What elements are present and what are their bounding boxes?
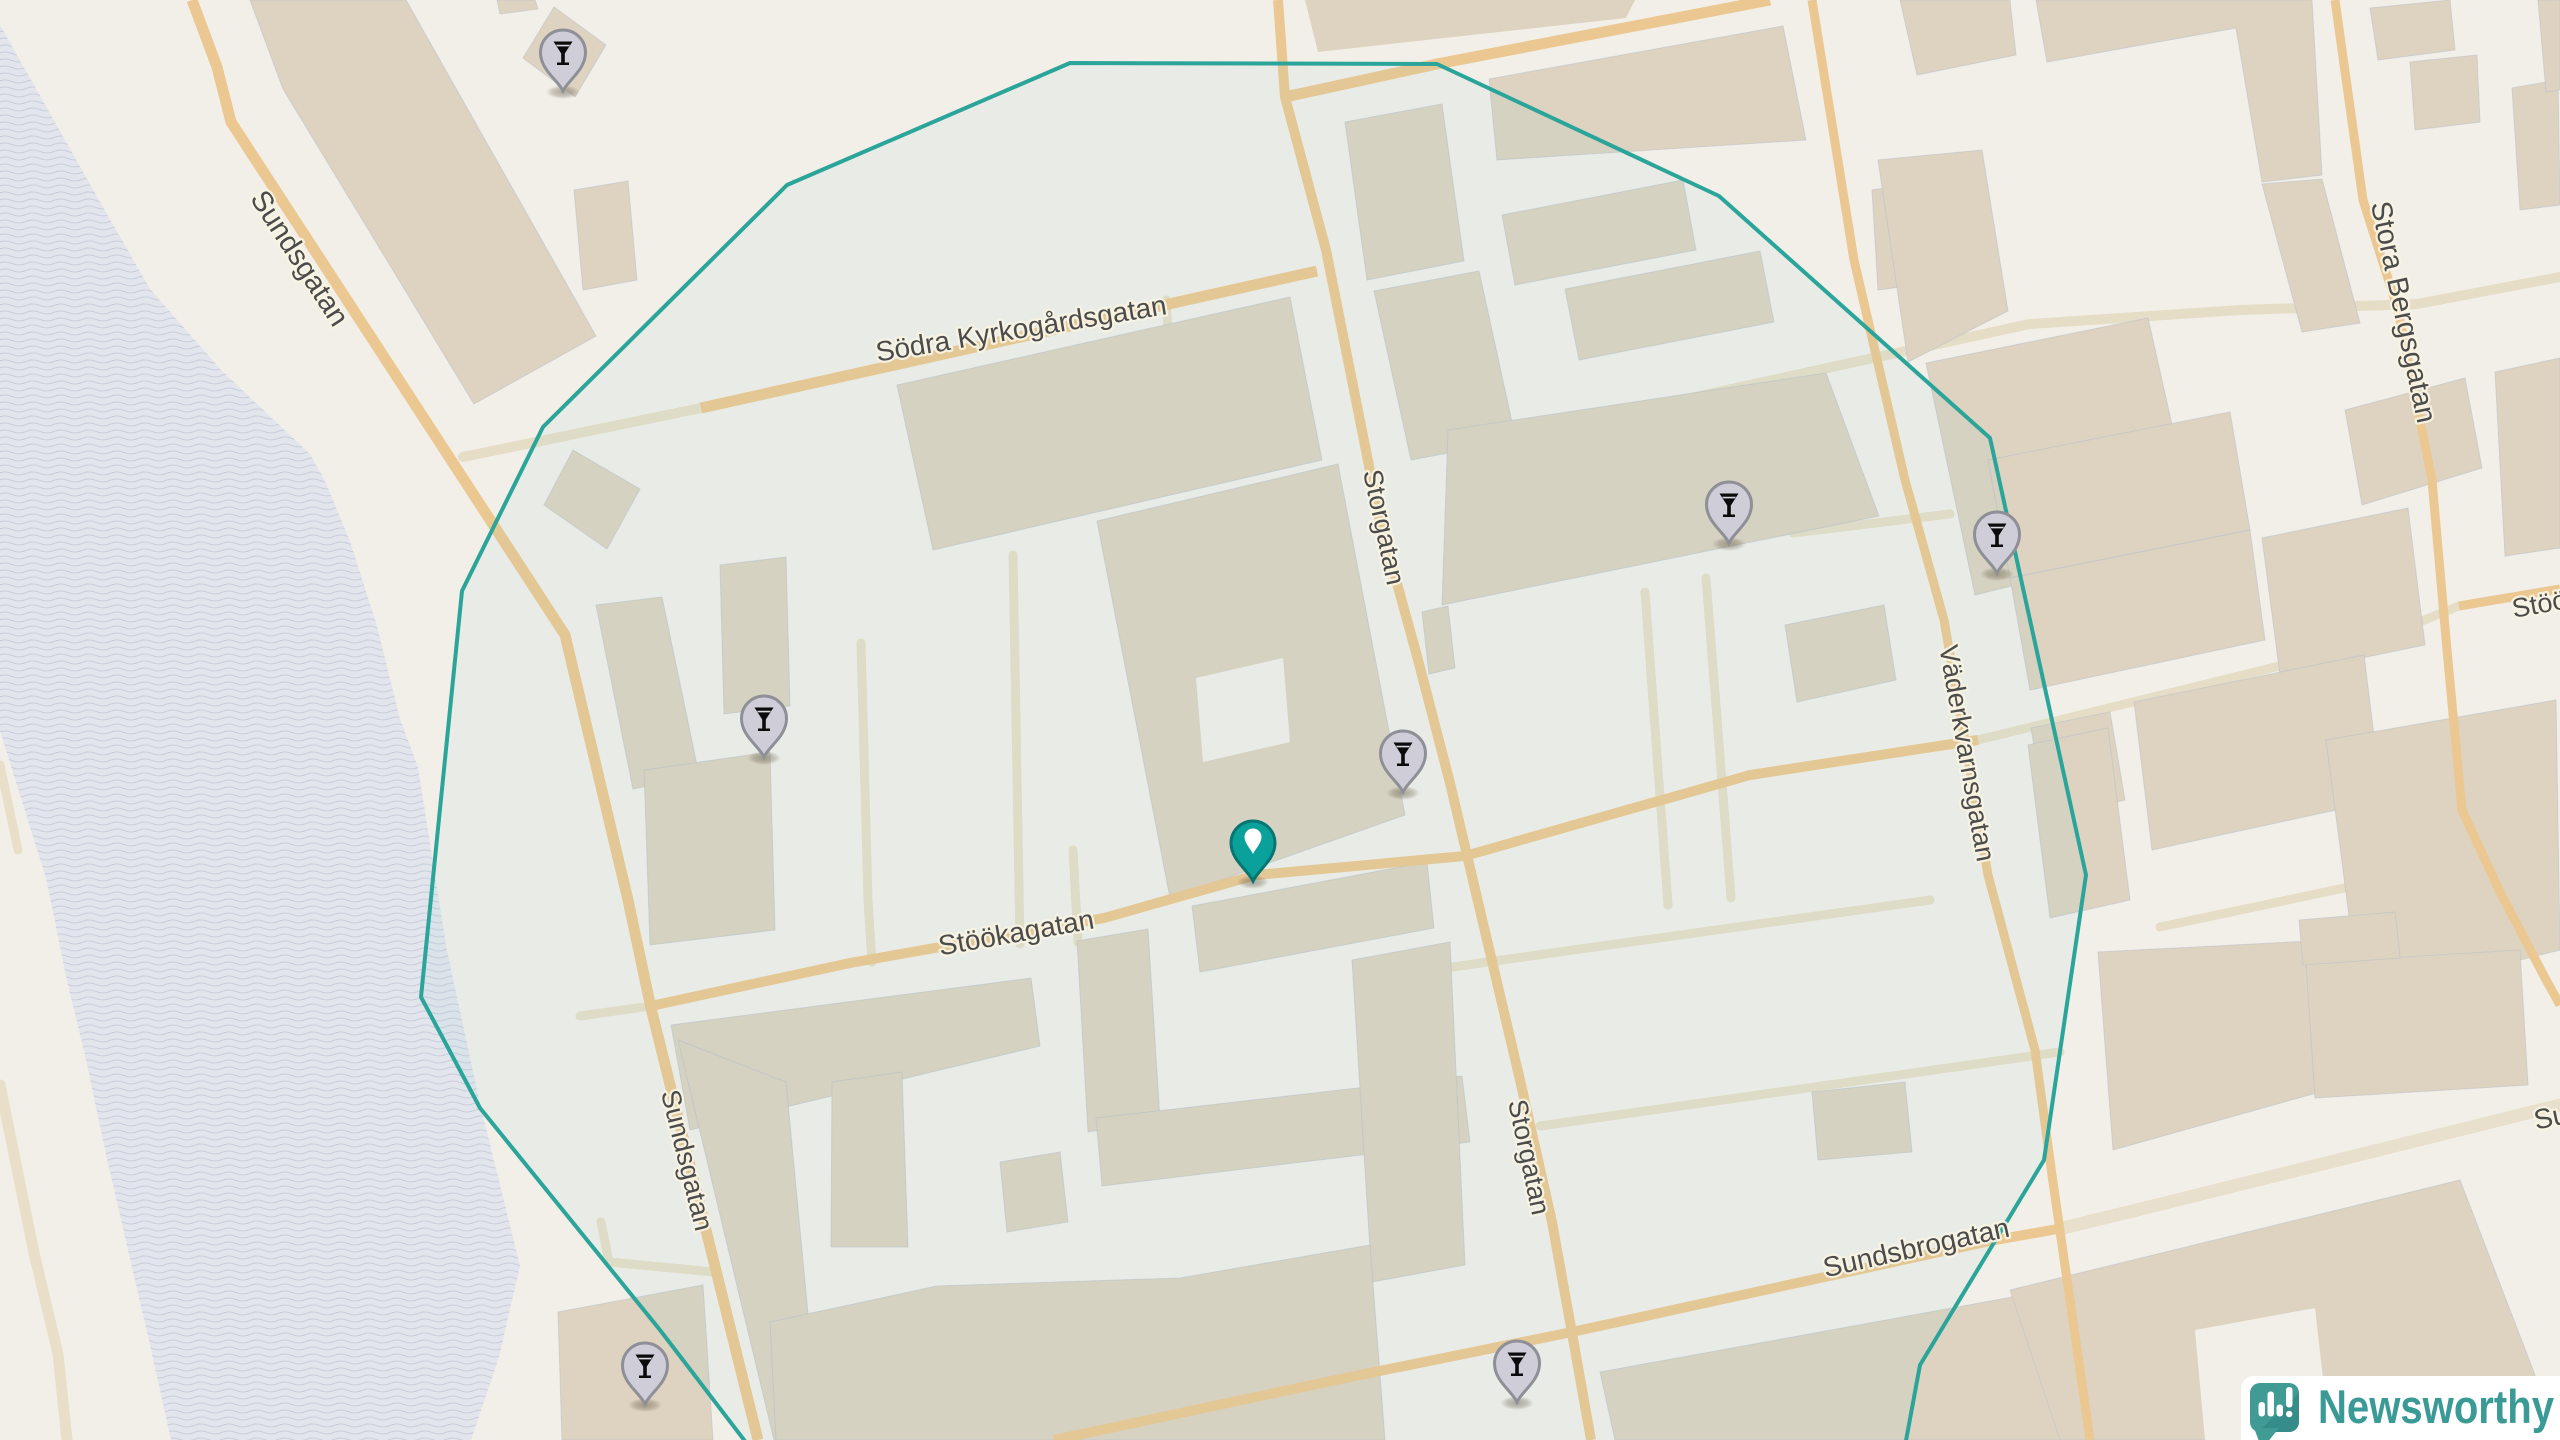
- svg-text:Newsworthy: Newsworthy: [2318, 1380, 2554, 1433]
